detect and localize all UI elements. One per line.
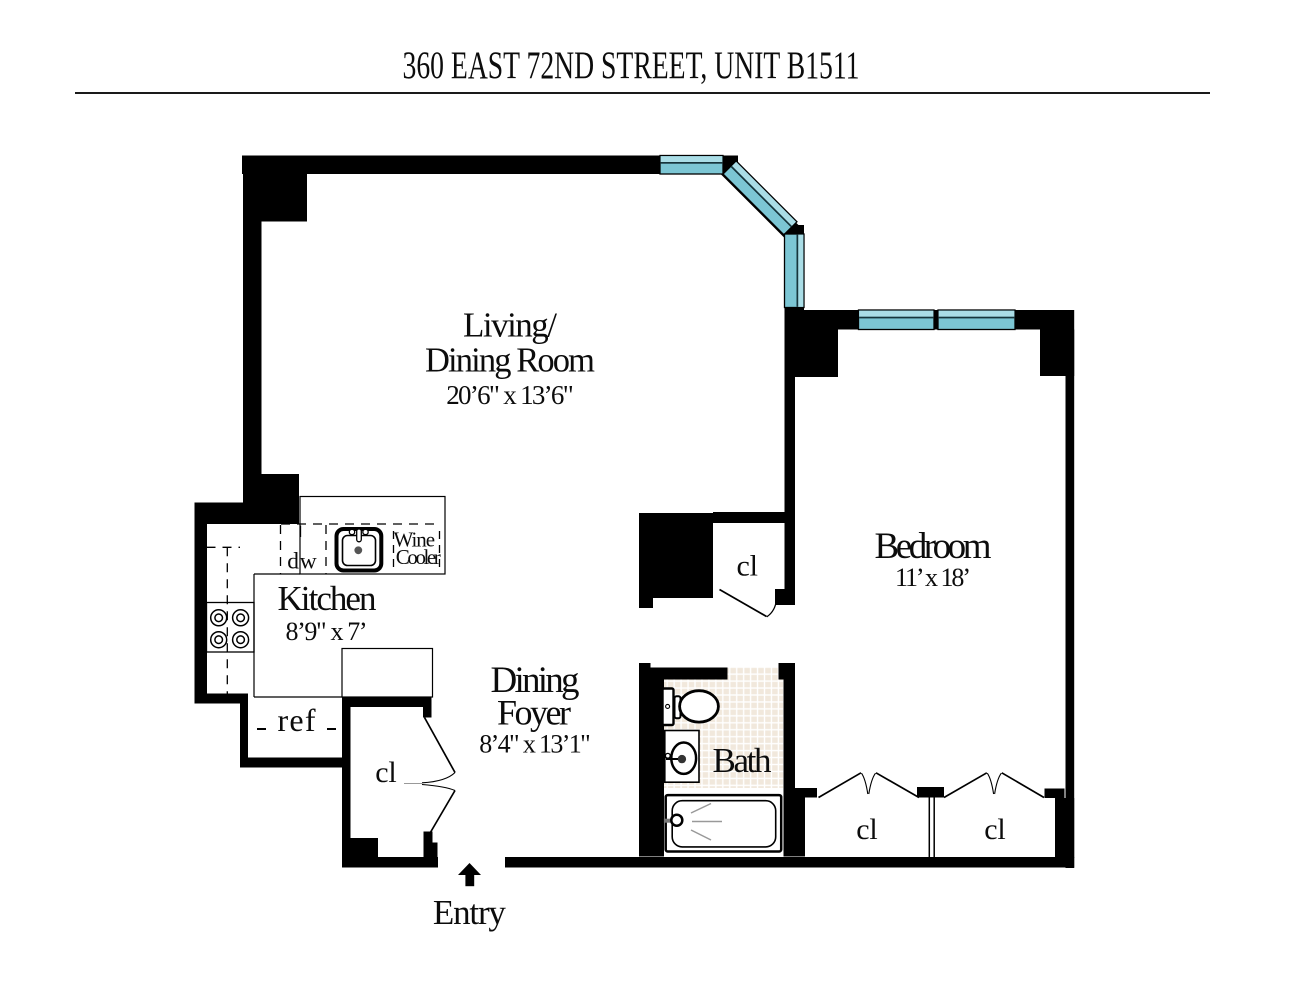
svg-text:cl: cl [375, 756, 397, 789]
svg-text:cl: cl [856, 813, 878, 846]
svg-text:Bath: Bath [713, 741, 773, 780]
svg-text:Foyer: Foyer [497, 693, 571, 733]
svg-text:Living/: Living/ [463, 306, 557, 345]
svg-text:dw: dw [287, 549, 317, 575]
svg-text:Dining Room: Dining Room [425, 342, 595, 380]
svg-text:cl: cl [984, 813, 1006, 846]
svg-text:Bedroom: Bedroom [875, 526, 992, 567]
svg-text:ref: ref [278, 702, 316, 738]
svg-text:11’ x 18’: 11’ x 18’ [895, 563, 971, 592]
svg-text:Kitchen: Kitchen [278, 579, 377, 618]
svg-text:20’6" x 13’6": 20’6" x 13’6" [446, 380, 574, 410]
svg-text:cl: cl [736, 550, 758, 583]
svg-text:8’9" x 7’: 8’9" x 7’ [286, 617, 368, 646]
svg-text:Cooler: Cooler [396, 545, 441, 569]
svg-text:Entry: Entry [433, 893, 507, 932]
svg-text:8’4" x 13’1": 8’4" x 13’1" [479, 730, 591, 759]
svg-text:360 EAST 72ND STREET, UNIT B15: 360 EAST 72ND STREET, UNIT B1511 [403, 44, 860, 87]
